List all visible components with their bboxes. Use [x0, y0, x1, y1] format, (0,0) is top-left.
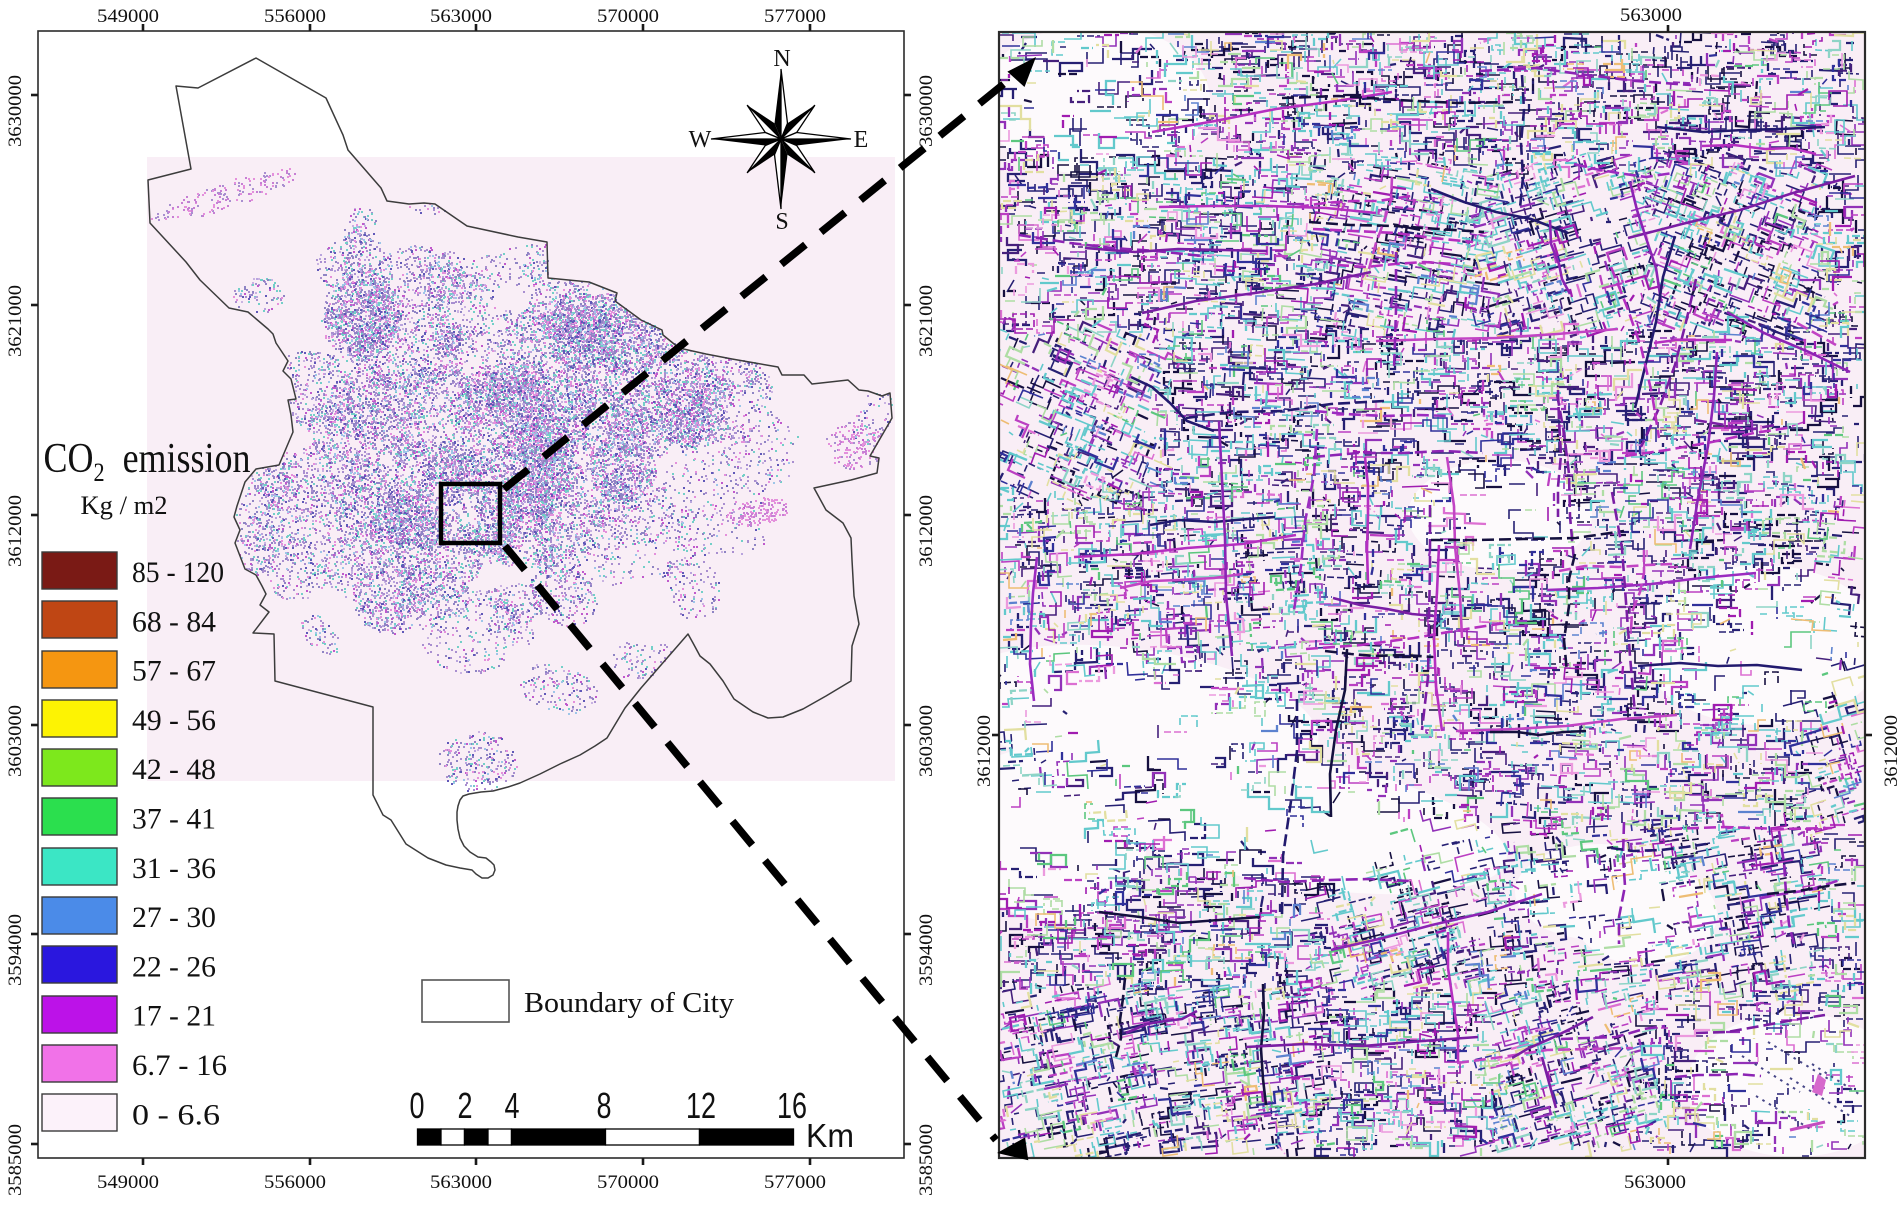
- svg-text:31 - 36: 31 - 36: [132, 852, 216, 885]
- svg-text:3594000: 3594000: [916, 914, 937, 986]
- svg-text:3621000: 3621000: [916, 285, 937, 357]
- svg-text:563000: 563000: [430, 6, 492, 27]
- svg-text:563000: 563000: [430, 1172, 492, 1193]
- svg-text:4: 4: [505, 1085, 520, 1126]
- svg-text:549000: 549000: [97, 6, 159, 27]
- svg-text:W: W: [689, 127, 712, 153]
- svg-text:0: 0: [410, 1085, 425, 1126]
- svg-text:49 - 56: 49 - 56: [132, 704, 216, 737]
- svg-text:S: S: [775, 209, 788, 235]
- svg-text:563000: 563000: [1624, 1172, 1686, 1193]
- svg-text:27 - 30: 27 - 30: [132, 901, 216, 934]
- svg-text:3585000: 3585000: [5, 1124, 26, 1196]
- svg-text:556000: 556000: [264, 1172, 326, 1193]
- svg-text:6.7 - 16: 6.7 - 16: [132, 1049, 227, 1082]
- svg-text:556000: 556000: [264, 6, 326, 27]
- svg-text:2: 2: [458, 1085, 473, 1126]
- svg-text:3630000: 3630000: [916, 75, 937, 147]
- svg-text:3612000: 3612000: [974, 715, 995, 787]
- svg-text:3585000: 3585000: [916, 1124, 937, 1196]
- svg-text:16: 16: [777, 1085, 807, 1126]
- svg-text:CO2 emission: CO2 emission: [44, 436, 251, 487]
- svg-text:85 - 120: 85 - 120: [132, 556, 224, 589]
- svg-text:563000: 563000: [1620, 5, 1682, 26]
- svg-text:68 - 84: 68 - 84: [132, 605, 216, 638]
- svg-text:570000: 570000: [597, 1172, 659, 1193]
- svg-text:3621000: 3621000: [5, 285, 26, 357]
- svg-text:Km: Km: [806, 1117, 854, 1154]
- svg-text:37 - 41: 37 - 41: [132, 803, 216, 836]
- svg-text:22 - 26: 22 - 26: [132, 950, 216, 983]
- svg-text:3603000: 3603000: [5, 705, 26, 777]
- svg-text:3612000: 3612000: [5, 495, 26, 567]
- svg-text:577000: 577000: [764, 1172, 826, 1193]
- svg-text:3612000: 3612000: [916, 495, 937, 567]
- svg-text:0 - 6.6: 0 - 6.6: [132, 1098, 220, 1131]
- svg-text:549000: 549000: [97, 1172, 159, 1193]
- svg-text:42 - 48: 42 - 48: [132, 753, 216, 786]
- svg-text:12: 12: [686, 1085, 716, 1126]
- svg-text:Boundary of City: Boundary of City: [524, 987, 735, 1019]
- svg-text:8: 8: [597, 1085, 612, 1126]
- svg-text:3630000: 3630000: [5, 75, 26, 147]
- svg-text:57 - 67: 57 - 67: [132, 655, 216, 688]
- svg-text:17 - 21: 17 - 21: [132, 1000, 216, 1033]
- svg-text:3612000: 3612000: [1881, 715, 1900, 787]
- svg-text:3603000: 3603000: [916, 705, 937, 777]
- svg-text:Kg / m2: Kg / m2: [81, 491, 168, 520]
- svg-text:3594000: 3594000: [5, 914, 26, 986]
- svg-text:570000: 570000: [597, 6, 659, 27]
- svg-text:577000: 577000: [764, 6, 826, 27]
- svg-text:N: N: [773, 46, 790, 72]
- svg-text:E: E: [854, 127, 869, 153]
